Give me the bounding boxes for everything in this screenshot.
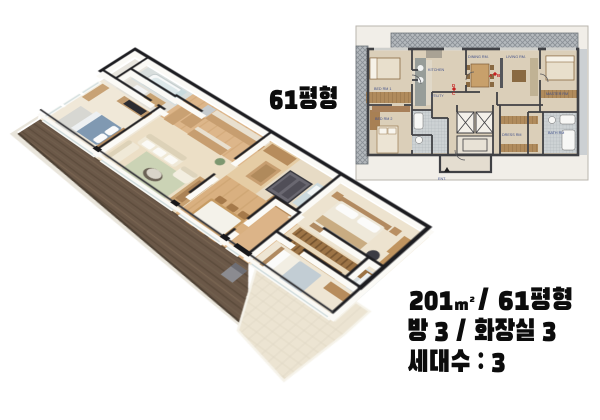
svg-text:LIVING RM.: LIVING RM. xyxy=(506,55,526,59)
svg-text:DRESS RM: DRESS RM xyxy=(502,133,521,137)
svg-text:ENT.: ENT. xyxy=(438,177,446,181)
svg-text:UTILITY: UTILITY xyxy=(431,94,444,98)
svg-text:BED RM 2: BED RM 2 xyxy=(375,117,392,121)
svg-text:BED RM 1: BED RM 1 xyxy=(374,87,391,91)
svg-text:MASTER RM: MASTER RM xyxy=(546,92,568,96)
svg-text:BATH RM: BATH RM xyxy=(548,131,564,135)
svg-text:DINING RM.: DINING RM. xyxy=(468,55,489,59)
svg-text:KITCHEN: KITCHEN xyxy=(428,68,445,72)
